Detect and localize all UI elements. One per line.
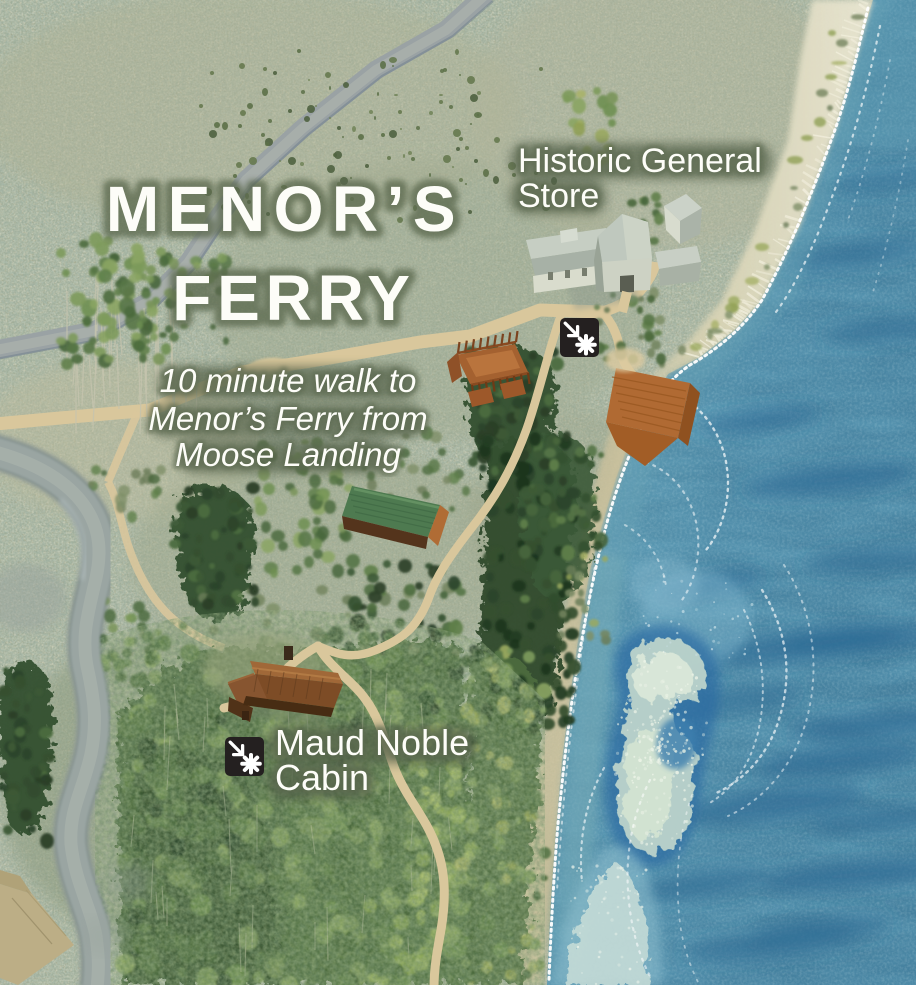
svg-text:10 minute walk to: 10 minute walk to (160, 362, 417, 399)
svg-text:MENOR’S: MENOR’S (106, 173, 464, 245)
svg-text:Store: Store (518, 177, 599, 215)
svg-text:Cabin: Cabin (275, 757, 369, 798)
svg-text:FERRY: FERRY (172, 262, 416, 334)
svg-text:Moose Landing: Moose Landing (175, 436, 401, 473)
svg-text:Historic General: Historic General (518, 142, 762, 180)
svg-text:Menor’s Ferry from: Menor’s Ferry from (148, 400, 427, 437)
